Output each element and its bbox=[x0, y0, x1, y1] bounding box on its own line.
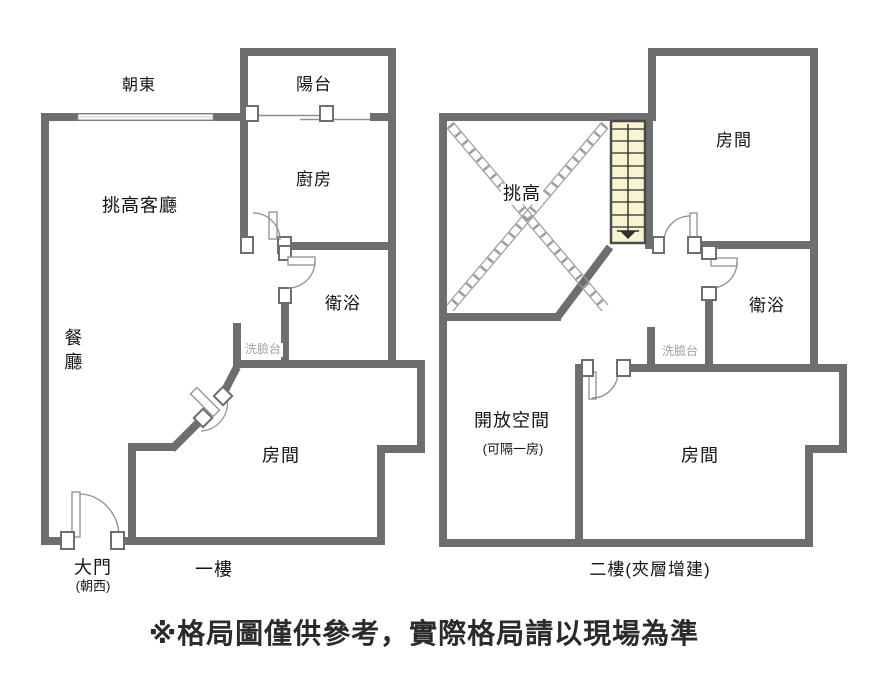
floorplan-drawing bbox=[0, 0, 889, 685]
f1-entrance-door bbox=[61, 492, 124, 549]
f1-balcony-top-wall bbox=[240, 48, 396, 56]
f1-window bbox=[78, 114, 213, 120]
floor2-diagonal-walls bbox=[556, 247, 610, 319]
f1-balcony-sill-right bbox=[370, 113, 388, 121]
f1-dining-label: 餐廳 bbox=[62, 328, 83, 376]
f1-entrance-label: 大門 bbox=[74, 558, 112, 579]
f1-title: 一樓 bbox=[195, 560, 233, 581]
floorplan-page: 朝東 陽台 廚房 挑高客廳 餐廳 衛浴 洗臉台 房間 大門 (朝西) 一樓 挑高… bbox=[0, 0, 889, 685]
f2-bedroom-door bbox=[582, 360, 630, 399]
f2-mid-wall-main bbox=[630, 364, 847, 372]
f2-bedroom-left-wall bbox=[575, 364, 583, 547]
f2-stairs-door bbox=[653, 213, 701, 253]
f2-basin-stub-wall bbox=[647, 327, 655, 364]
f2-room-bottom-wall bbox=[701, 241, 818, 249]
f1-bottom-wall-left bbox=[41, 537, 61, 545]
f1-right-wall bbox=[388, 48, 396, 368]
f1-kitchen-label: 廚房 bbox=[296, 170, 332, 190]
f1-basin-right-wall bbox=[281, 301, 289, 368]
f2-ext-right-wall bbox=[839, 367, 847, 453]
f2-title: 二樓(夾層增建) bbox=[589, 560, 710, 580]
f2-open-space-label: 開放空間 bbox=[474, 411, 550, 432]
f1-bedroom-topleft-wall bbox=[128, 443, 175, 451]
f1-entrance-facing-label: (朝西) bbox=[76, 580, 111, 595]
f1-sliding-door bbox=[245, 106, 370, 121]
f2-void-label: 挑高 bbox=[501, 184, 543, 205]
f2-room-bottom-label: 房間 bbox=[681, 446, 719, 467]
f2-bath-left-wall bbox=[705, 298, 713, 368]
f1-bedroom-left-wall bbox=[128, 443, 136, 545]
f1-bedroom-top-wall bbox=[233, 360, 425, 368]
f2-room-left-wall bbox=[648, 48, 656, 121]
f1-balcony-label: 陽台 bbox=[296, 75, 332, 95]
f1-direction-label: 朝東 bbox=[122, 77, 156, 95]
disclaimer-text: ※格局圖僅供參考，實際格局請以現場為準 bbox=[149, 612, 699, 652]
f2-basin-label: 洗臉台 bbox=[660, 345, 700, 359]
f2-void-bottom-wall bbox=[443, 313, 561, 321]
f1-kitchen-left-wall bbox=[240, 121, 248, 238]
f1-diagonal-wall-lower bbox=[172, 423, 198, 449]
f2-room-top-label: 房間 bbox=[716, 131, 752, 151]
f2-left-wall bbox=[439, 113, 447, 547]
f2-right-wall bbox=[810, 48, 818, 372]
f2-bathroom-door bbox=[702, 246, 737, 300]
f2-room-top-wall bbox=[648, 48, 818, 56]
f1-bathroom-door bbox=[279, 246, 315, 303]
f2-staircase bbox=[611, 121, 645, 243]
f2-bottom-wall bbox=[439, 539, 813, 547]
f1-living-label: 挑高客廳 bbox=[102, 196, 178, 217]
f1-bottom-wall-main bbox=[124, 537, 385, 545]
f1-kitchen-bottom-wall bbox=[291, 242, 388, 250]
f1-notch-right-wall bbox=[417, 360, 425, 453]
floor1-walls bbox=[41, 48, 425, 545]
f1-lower-right-wall bbox=[377, 445, 385, 545]
f2-bath-label: 衛浴 bbox=[749, 296, 785, 316]
f1-basin-stub-wall bbox=[233, 323, 241, 368]
f2-lower-right-wall bbox=[805, 445, 813, 547]
f2-open-space-note: (可隔一房) bbox=[483, 443, 544, 458]
f1-bath-label: 衛浴 bbox=[325, 294, 361, 314]
f1-left-wall bbox=[41, 113, 49, 545]
f1-basin-label: 洗臉台 bbox=[243, 343, 283, 357]
f1-bedroom-label: 房間 bbox=[262, 446, 300, 467]
f2-void-diagonal-wall bbox=[556, 247, 610, 319]
